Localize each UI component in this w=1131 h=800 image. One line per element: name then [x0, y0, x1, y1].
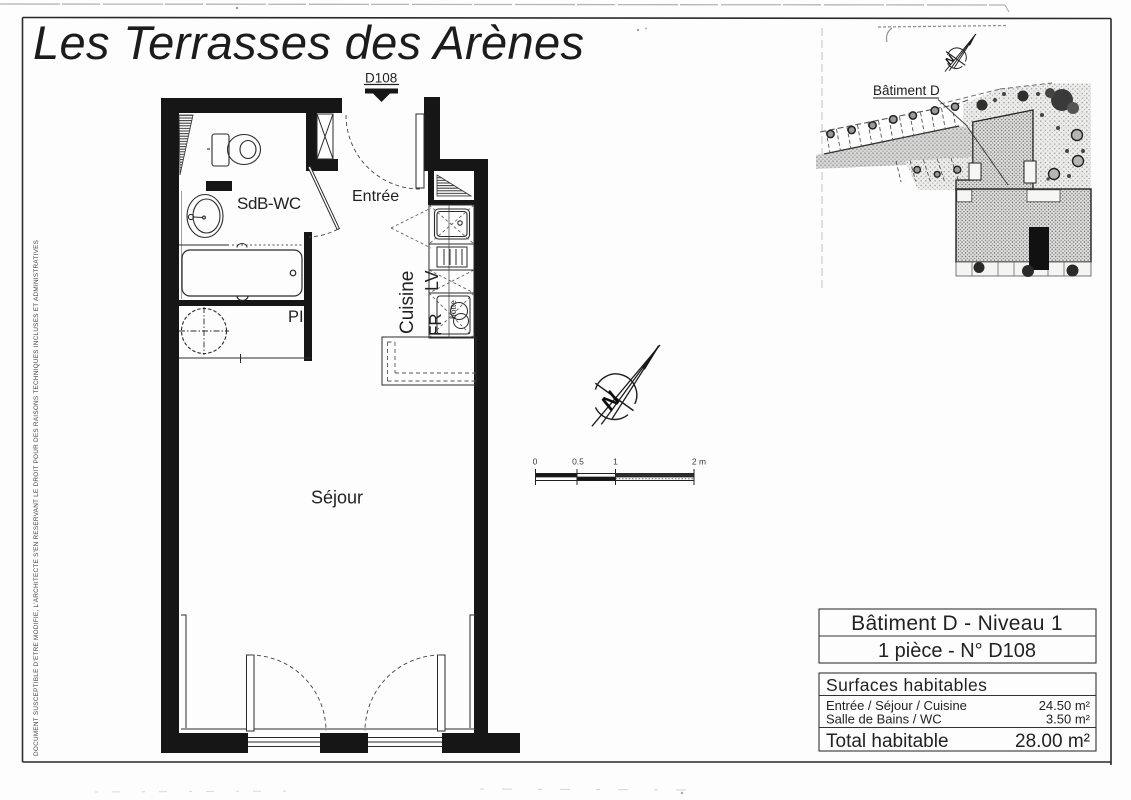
svg-text:Total habitable: Total habitable [826, 731, 949, 752]
svg-text:Séjour: Séjour [311, 488, 363, 508]
svg-text:1: 1 [613, 457, 618, 467]
svg-text:Cuisine: Cuisine [397, 271, 418, 334]
svg-text:DOCUMENT SUSCEPTIBLE D'ETRE MO: DOCUMENT SUSCEPTIBLE D'ETRE MODIFIE, L'A… [33, 240, 40, 756]
svg-text:0.5: 0.5 [572, 457, 584, 467]
svg-text:Surfaces habitables: Surfaces habitables [826, 675, 987, 695]
svg-text:Entrée: Entrée [352, 188, 399, 205]
svg-text:LV: LV [422, 270, 442, 291]
svg-text:hotte: hotte [448, 300, 458, 319]
svg-text:D108: D108 [365, 71, 397, 86]
svg-text:1 pièce - N° D108: 1 pièce - N° D108 [878, 640, 1036, 662]
svg-text:2 m: 2 m [692, 457, 706, 467]
svg-text:28.00 m²: 28.00 m² [1015, 731, 1090, 752]
svg-text:FR: FR [426, 313, 445, 336]
svg-text:Bâtiment D: Bâtiment D [873, 83, 940, 98]
svg-text:Salle de Bains / WC: Salle de Bains / WC [826, 712, 942, 727]
svg-text:Les Terrasses des Arènes: Les Terrasses des Arènes [33, 16, 584, 69]
svg-text:3.50 m²: 3.50 m² [1046, 712, 1091, 727]
svg-text:SdB-WC: SdB-WC [237, 194, 301, 213]
svg-text:0: 0 [533, 457, 538, 467]
svg-text:Bâtiment D - Niveau 1: Bâtiment D - Niveau 1 [851, 612, 1063, 635]
svg-text:PI: PI [288, 308, 304, 326]
